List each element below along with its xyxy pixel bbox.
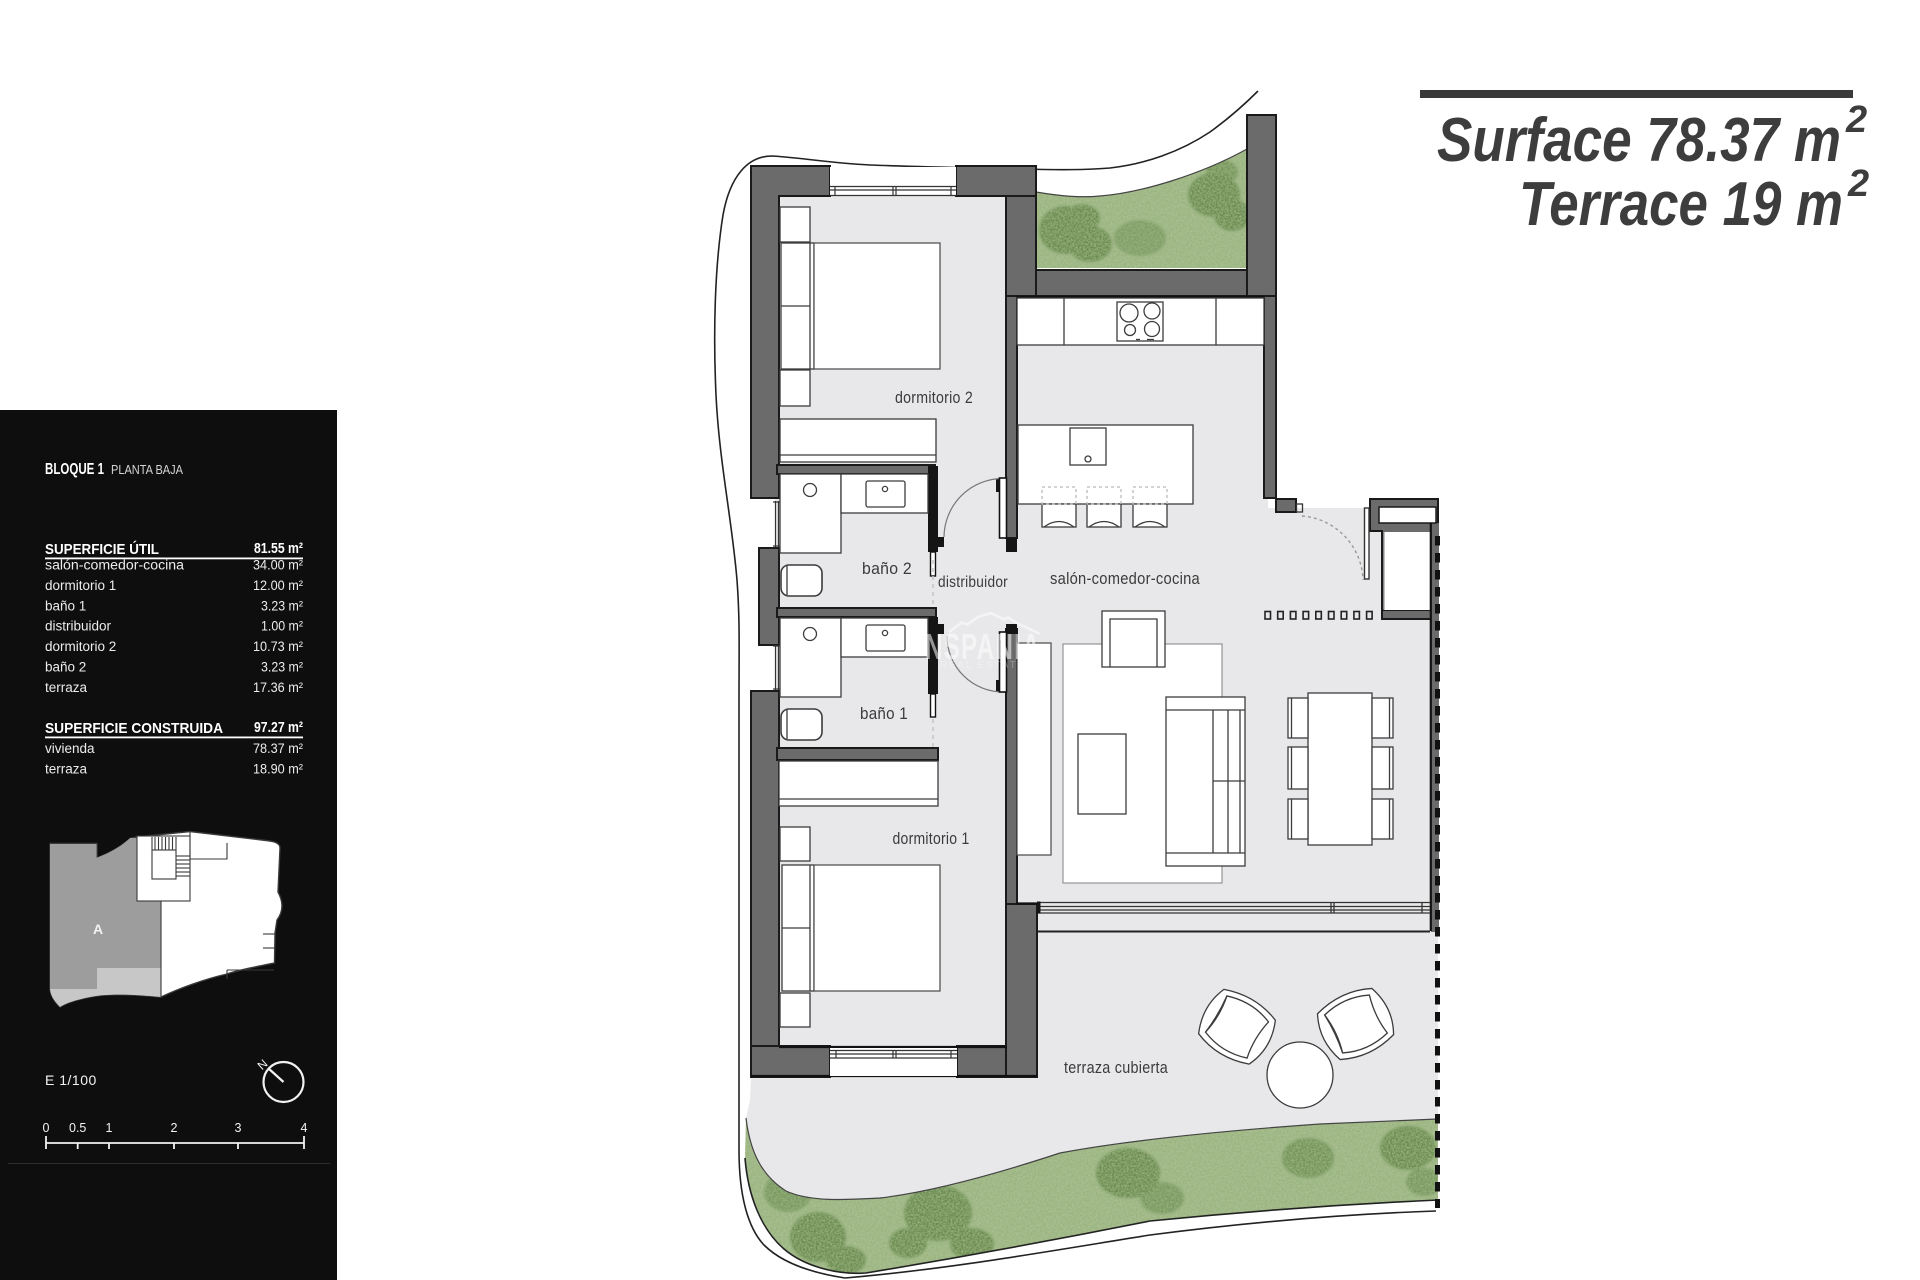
svg-text:baño 1: baño 1 [45,598,86,613]
svg-text:0: 0 [43,1121,50,1135]
svg-text:salón-comedor-cocina: salón-comedor-cocina [45,558,185,573]
svg-text:PLANTA BAJA: PLANTA BAJA [111,462,183,477]
svg-text:dormitorio 2: dormitorio 2 [45,639,116,654]
svg-text:17.36 m²: 17.36 m² [253,680,303,695]
svg-text:3.23 m²: 3.23 m² [261,660,303,675]
svg-text:A: A [93,921,103,937]
svg-text:1.00 m²: 1.00 m² [261,619,303,634]
svg-text:3.23 m²: 3.23 m² [261,598,303,613]
svg-text:2: 2 [1847,163,1869,205]
svg-text:97.27 m²: 97.27 m² [254,719,303,736]
svg-text:BLOQUE 1: BLOQUE 1 [45,461,104,478]
svg-text:0.5: 0.5 [69,1121,86,1135]
svg-text:dormitorio 1: dormitorio 1 [893,830,970,848]
svg-text:baño 2: baño 2 [862,560,912,578]
svg-text:baño 2: baño 2 [45,660,86,675]
svg-text:2: 2 [171,1121,178,1135]
svg-text:12.00 m²: 12.00 m² [253,578,303,593]
svg-text:2: 2 [1845,99,1867,141]
svg-text:1: 1 [106,1121,113,1135]
svg-text:baño 1: baño 1 [860,705,908,723]
svg-text:10.73 m²: 10.73 m² [253,639,303,654]
svg-text:terraza: terraza [45,762,88,777]
svg-text:81.55 m²: 81.55 m² [254,540,303,557]
svg-text:SUPERFICIE CONSTRUIDA: SUPERFICIE CONSTRUIDA [45,720,223,737]
svg-text:SUPERFICIE ÚTIL: SUPERFICIE ÚTIL [45,540,159,558]
svg-text:salón-comedor-cocina: salón-comedor-cocina [1050,570,1200,588]
svg-text:distribuidor: distribuidor [45,619,112,634]
svg-text:REAL ESTATE: REAL ESTATE [940,660,1026,671]
svg-text:3: 3 [235,1121,242,1135]
svg-text:distribuidor: distribuidor [938,574,1008,591]
svg-text:vivienda: vivienda [45,741,95,756]
svg-text:E 1/100: E 1/100 [45,1072,97,1088]
svg-text:terraza cubierta: terraza cubierta [1064,1059,1168,1077]
svg-text:Terrace 19 m: Terrace 19 m [1519,170,1843,239]
svg-text:4: 4 [301,1121,308,1135]
svg-text:78.37 m²: 78.37 m² [253,741,303,756]
svg-text:dormitorio 1: dormitorio 1 [45,578,116,593]
svg-text:34.00 m²: 34.00 m² [253,558,303,573]
svg-text:terraza: terraza [45,680,88,695]
svg-text:dormitorio 2: dormitorio 2 [895,389,973,407]
svg-text:Surface 78.37 m: Surface 78.37 m [1437,106,1841,175]
svg-text:18.90 m²: 18.90 m² [253,762,303,777]
